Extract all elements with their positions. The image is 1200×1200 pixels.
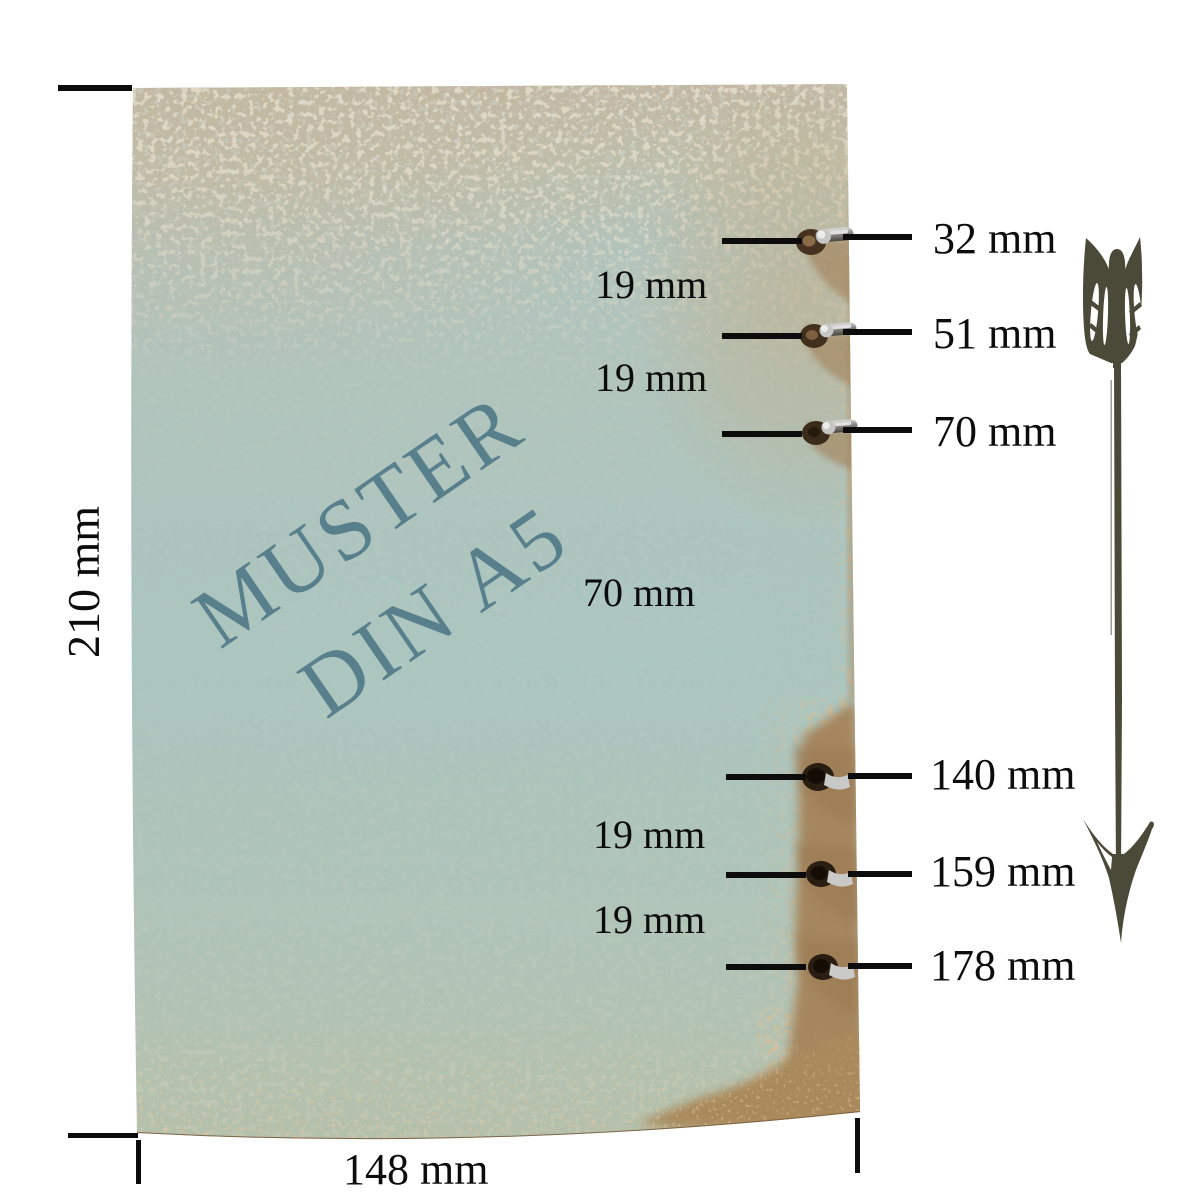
- svg-text:32 mm: 32 mm: [933, 214, 1056, 263]
- svg-text:19 mm: 19 mm: [595, 262, 707, 307]
- svg-text:19 mm: 19 mm: [593, 812, 705, 857]
- svg-text:210 mm: 210 mm: [58, 506, 109, 658]
- svg-text:51 mm: 51 mm: [933, 309, 1056, 358]
- svg-text:148 mm: 148 mm: [343, 1145, 488, 1194]
- svg-text:19 mm: 19 mm: [595, 355, 707, 400]
- svg-text:70 mm: 70 mm: [933, 407, 1056, 456]
- svg-text:159 mm: 159 mm: [930, 847, 1075, 896]
- svg-text:140 mm: 140 mm: [930, 750, 1075, 799]
- svg-text:70 mm: 70 mm: [583, 570, 695, 615]
- svg-text:178 mm: 178 mm: [930, 941, 1075, 990]
- svg-text:19 mm: 19 mm: [593, 897, 705, 942]
